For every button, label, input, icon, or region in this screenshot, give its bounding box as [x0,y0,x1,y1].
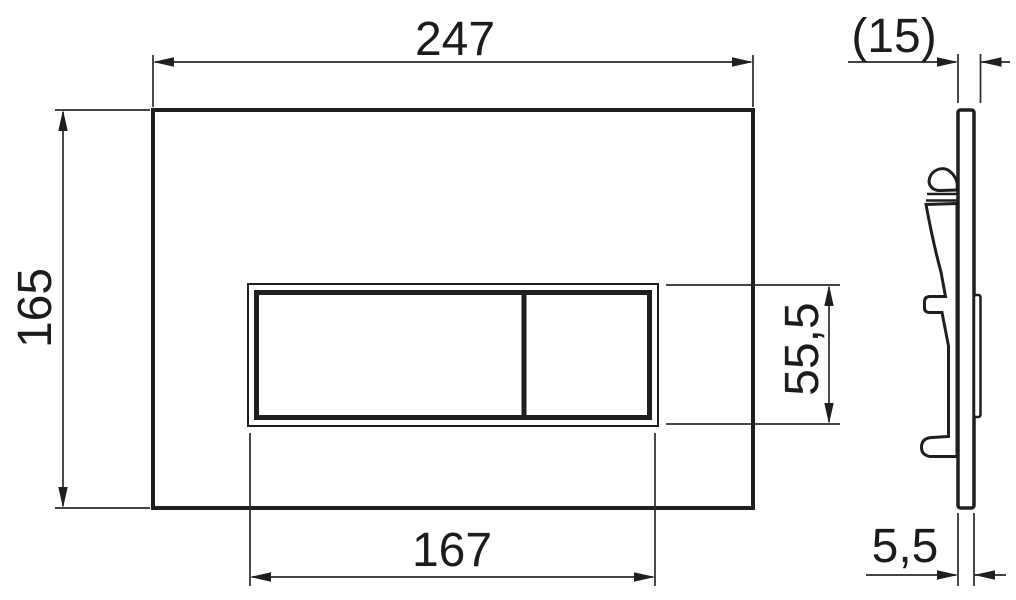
dim-overall-depth: (15) [848,10,1010,103]
front-view [153,110,753,508]
clip-top-hook [929,169,957,191]
side-view [921,110,980,508]
drawing-canvas: 247 165 167 55,5 (15) [0,0,1016,600]
arrowhead-bottom [58,487,67,508]
dim-label-button-width: 167 [412,524,492,577]
arrowhead-bottom [824,403,833,424]
button-panel-inner-frame [257,293,650,418]
arrowhead-left [937,57,958,66]
dim-label-plate-width: 247 [415,13,495,66]
arrowhead-left [153,57,174,66]
dim-label-overall-depth: (15) [851,10,936,63]
dim-label-button-height: 55,5 [776,302,829,395]
arrowhead-left [250,572,271,581]
dim-label-plate-height: 165 [9,268,62,348]
arrowhead-right [981,57,1002,66]
dim-plate-thickness: 5,5 [866,513,1006,586]
side-button-profile [974,295,981,417]
arrowhead-top [58,110,67,131]
dimension-drawing-svg: 247 165 167 55,5 (15) [0,0,1016,600]
clip-body-profile [921,204,957,457]
dim-plate-width: 247 [153,13,753,107]
arrowhead-right [634,572,655,581]
dim-plate-height: 165 [9,110,150,508]
arrowhead-right [732,57,753,66]
arrowhead-right [974,570,995,579]
side-plate-profile [958,110,974,508]
dim-label-plate-thickness: 5,5 [872,520,939,573]
arrowhead-left [937,570,958,579]
